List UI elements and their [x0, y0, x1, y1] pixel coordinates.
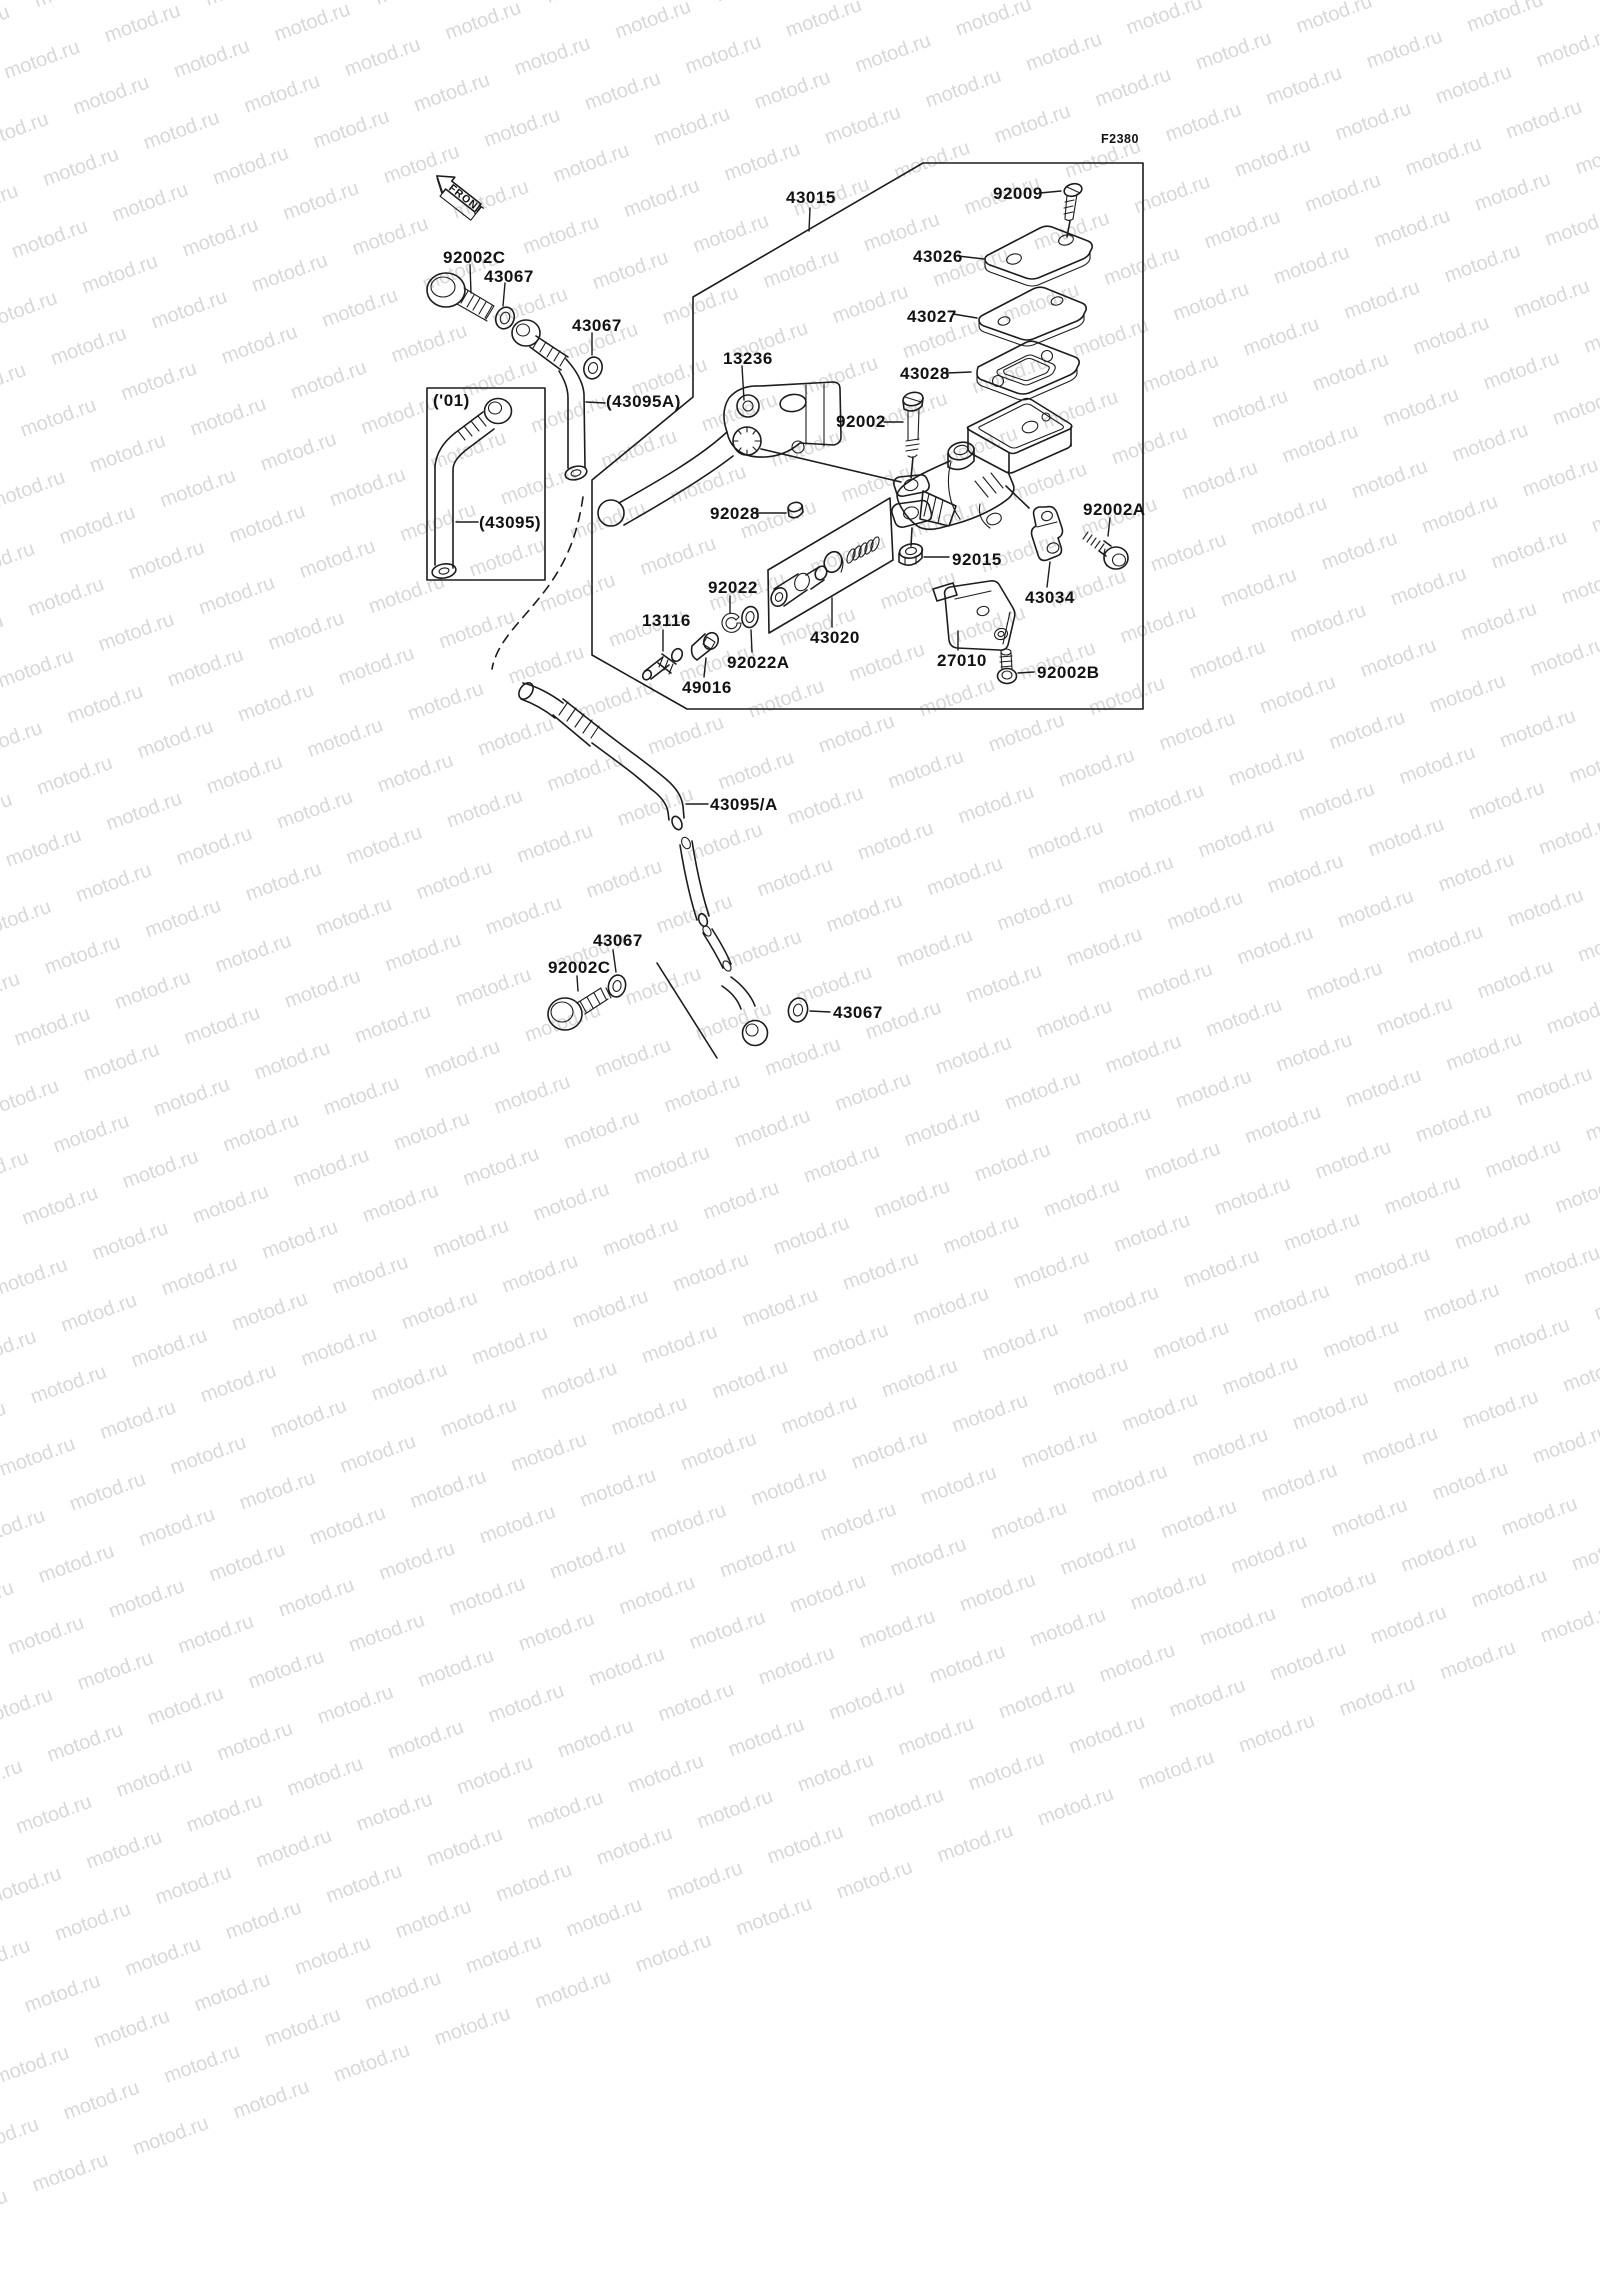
leader-line-43028	[947, 372, 971, 373]
clutch-lever-13236	[598, 382, 841, 526]
watermark-text: motod.ru	[957, 1560, 1064, 1615]
watermark-text: motod.ru	[1136, 1738, 1243, 1793]
lever-pin-92028	[787, 501, 803, 518]
watermark-text: motod.ru	[369, 1350, 476, 1405]
leader-line-92022A	[751, 630, 752, 652]
socket-bolt-92002a	[1083, 532, 1128, 569]
watermark-text: motod.ru	[114, 1746, 221, 1801]
watermark-text: motod.ru	[330, 1242, 437, 1297]
watermark-text: motod.ru	[633, 1921, 740, 1976]
watermark-text: motod.ru	[231, 2067, 338, 2122]
watermark-text: motod.ru	[1320, 1306, 1427, 1361]
clutch-switch-27010	[933, 581, 1015, 650]
leader-line-43095A	[586, 402, 605, 403]
watermark-text: motod.ru	[432, 1994, 539, 2049]
watermark-text: motod.ru	[463, 1922, 570, 1977]
watermark-text: motod.ru	[184, 1781, 291, 1836]
watermark-text: motod.ru	[424, 1815, 531, 1870]
watermark-text: motod.ru	[159, 1244, 266, 1299]
watermark-text: motod.ru	[0, 1854, 90, 1909]
watermark-text: motod.ru	[857, 1597, 964, 1652]
watermark-row: motod.rumotod.rumotod.rumotod.rumotod.ru…	[0, 1082, 1600, 2125]
watermark-text: motod.ru	[192, 1960, 299, 2015]
watermark-text: motod.ru	[670, 1240, 777, 1295]
watermark-row: motod.rumotod.rumotod.rumotod.rumotod.ru…	[0, 1046, 1600, 2089]
watermark-text: motod.ru	[586, 1634, 693, 1689]
hose-43095a-lower	[516, 680, 768, 1045]
watermark-text: motod.ru	[1011, 1237, 1118, 1292]
watermark-text: motod.ru	[175, 1602, 282, 1657]
watermark-text: motod.ru	[0, 1496, 74, 1551]
watermark-text: motod.ru	[1158, 1487, 1265, 1542]
main-assembly-box-43015	[592, 163, 1143, 709]
watermark-text: motod.ru	[106, 1566, 213, 1621]
watermark-text: motod.ru	[740, 1275, 847, 1330]
watermark-text: motod.ru	[0, 2105, 68, 2160]
watermark-text: motod.ru	[717, 1526, 824, 1581]
watermark-text: motod.ru	[609, 1383, 716, 1438]
watermark-text: motod.ru	[508, 1420, 615, 1475]
push-rod-13116	[641, 647, 684, 681]
watermark-text: motod.ru	[840, 1239, 947, 1294]
watermark-text: motod.ru	[393, 1887, 500, 1942]
banjo-washer-43067-4	[786, 996, 810, 1023]
watermark-text: motod.ru	[0, 1461, 4, 1516]
watermark-text: motod.ru	[0, 1424, 104, 1479]
leader-lines	[456, 191, 1110, 1012]
screw-92009	[1063, 182, 1083, 221]
hose-hidden-path-dashed	[492, 497, 583, 669]
watermark-text: motod.ru	[639, 1312, 746, 1367]
watermark-text: motod.ru	[298, 1314, 405, 1369]
watermark-text: motod.ru	[756, 1633, 863, 1688]
watermark-text: motod.ru	[1097, 1630, 1204, 1685]
watermark-text: motod.ru	[532, 1957, 639, 2012]
watermark-text: motod.ru	[555, 1706, 662, 1761]
watermark-text: motod.ru	[625, 1741, 732, 1796]
watermark-text: motod.ru	[648, 1491, 755, 1546]
watermark-text: motod.ru	[0, 1747, 51, 1802]
watermark-text: motod.ru	[1499, 1484, 1600, 1539]
hose-43095a-upper	[512, 320, 588, 482]
watermark-text: motod.ru	[376, 1529, 483, 1584]
watermark-text: motod.ru	[0, 1998, 29, 2053]
watermark-text: motod.ru	[594, 1813, 701, 1868]
watermark-text: motod.ru	[1220, 1343, 1327, 1398]
watermark-text: motod.ru	[709, 1347, 816, 1402]
watermark-text: motod.ru	[1298, 1557, 1405, 1612]
watermark-text: motod.ru	[153, 1853, 260, 1908]
watermark-text: motod.ru	[0, 1317, 65, 1372]
watermark-text: motod.ru	[6, 1603, 113, 1658]
watermark-text: motod.ru	[1368, 1592, 1475, 1647]
watermark-text: motod.ru	[1398, 1521, 1505, 1576]
watermark-text: motod.ru	[198, 1351, 305, 1406]
watermark-text: motod.ru	[0, 1389, 35, 1444]
watermark-text: motod.ru	[1035, 1774, 1142, 1829]
watermark-text: motod.ru	[259, 1207, 366, 1262]
watermark-text: motod.ru	[214, 1709, 321, 1764]
watermark-text: motod.ru	[1119, 1380, 1226, 1435]
watermark-text: motod.ru	[1569, 1519, 1600, 1574]
seal-washer-92022a	[740, 605, 759, 628]
watermark-text: motod.ru	[363, 1958, 470, 2013]
watermark-text: motod.ru	[13, 1782, 120, 1837]
watermark-text: motod.ru	[1190, 1415, 1297, 1470]
watermark-text: motod.ru	[30, 2140, 137, 2195]
watermark-text: motod.ru	[1421, 1270, 1528, 1325]
watermark-text: motod.ru	[315, 1672, 422, 1727]
watermark-text: motod.ru	[935, 1811, 1042, 1866]
leader-line-92009	[1040, 191, 1061, 193]
watermark-text: motod.ru	[1089, 1451, 1196, 1506]
watermark-text: motod.ru	[430, 1206, 537, 1261]
watermark-text: motod.ru	[547, 1527, 654, 1582]
watermark-text: motod.ru	[678, 1419, 785, 1474]
watermark-text: motod.ru	[1337, 1664, 1444, 1719]
watermark-text: motod.ru	[276, 1565, 383, 1620]
watermark-text: motod.ru	[810, 1310, 917, 1365]
watermark-text: motod.ru	[888, 1524, 995, 1579]
reservoir-cap-43026	[985, 226, 1092, 286]
watermark-text: motod.ru	[447, 1564, 554, 1619]
watermark-text: motod.ru	[0, 1926, 59, 1981]
watermark-text: motod.ru	[516, 1599, 623, 1654]
watermark-text: motod.ru	[834, 1847, 941, 1902]
watermark-text: motod.ru	[795, 1740, 902, 1795]
watermark-text: motod.ru	[918, 1453, 1025, 1508]
leader-line-13236	[742, 366, 744, 400]
watermark-text: motod.ru	[996, 1667, 1103, 1722]
watermark-text: motod.ru	[337, 1422, 444, 1477]
watermark-text: motod.ru	[726, 1705, 833, 1760]
leader-line-43034	[1047, 562, 1050, 587]
watermark-text: motod.ru	[600, 1205, 707, 1260]
watermark-text: motod.ru	[1281, 1199, 1388, 1254]
watermark-text: motod.ru	[0, 2177, 37, 2232]
piston-kit-box-43020	[768, 498, 893, 633]
watermark-text: motod.ru	[486, 1671, 593, 1726]
watermark-text: motod.ru	[438, 1385, 545, 1440]
watermark-text: motod.ru	[656, 1670, 763, 1725]
watermark-text: motod.ru	[1460, 1377, 1567, 1432]
watermark-text: motod.ru	[0, 1245, 96, 1300]
watermark-text: motod.ru	[122, 1924, 229, 1979]
watermark-text: motod.ru	[664, 1849, 771, 1904]
watermark-text: motod.ru	[130, 2104, 237, 2159]
watermark-text: motod.ru	[307, 1493, 414, 1548]
watermark-text: motod.ru	[45, 1710, 152, 1765]
watermark-text: motod.ru	[765, 1812, 872, 1867]
watermark-text: motod.ru	[1197, 1594, 1304, 1649]
watermark-text: motod.ru	[415, 1636, 522, 1691]
watermark-text: motod.ru	[52, 1889, 159, 1944]
leader-line-49016	[704, 658, 706, 677]
watermark-text: motod.ru	[285, 1744, 392, 1799]
watermark-text: motod.ru	[1290, 1378, 1397, 1433]
leader-line-92002B	[1018, 672, 1034, 673]
watermark-text: motod.ru	[1530, 1412, 1600, 1467]
watermark-text: motod.ru	[1151, 1308, 1258, 1363]
reservoir-plate-43027	[979, 287, 1086, 346]
watermark-text: motod.ru	[1236, 1701, 1343, 1756]
piston-43020-contents	[768, 536, 880, 609]
snap-ring-92022	[722, 613, 741, 632]
watermark-text: motod.ru	[493, 1850, 600, 1905]
leader-line-92002A	[1108, 518, 1110, 536]
watermark-text: motod.ru	[90, 1208, 197, 1263]
watermark-text: motod.ru	[1251, 1271, 1358, 1326]
watermark-text: motod.ru	[1027, 1595, 1134, 1650]
watermark-text: motod.ru	[246, 1637, 353, 1692]
front-arrow: FRONT	[428, 168, 489, 223]
watermark-text: motod.ru	[1359, 1414, 1466, 1469]
watermark-text: motod.ru	[207, 1530, 314, 1585]
watermark-text: motod.ru	[1050, 1344, 1157, 1399]
watermark-text: motod.ru	[695, 1777, 802, 1832]
leader-line-43015	[809, 208, 810, 231]
watermark-text: motod.ru	[1167, 1666, 1274, 1721]
watermark-text: motod.ru	[385, 1707, 492, 1762]
watermark-row: motod.rumotod.rumotod.rumotod.rumotod.ru…	[0, 1189, 1600, 2232]
inset-hose-43095	[431, 399, 512, 580]
watermark-text: motod.ru	[477, 1492, 584, 1547]
watermark-text: motod.ru	[0, 2033, 98, 2088]
banjo-washer-43067-2	[581, 355, 604, 381]
watermark-text: motod.ru	[787, 1561, 894, 1616]
watermark-text: motod.ru	[865, 1775, 972, 1830]
clamp-holder-43034	[1032, 507, 1063, 561]
watermark-text: motod.ru	[1181, 1236, 1288, 1291]
watermark-text: motod.ru	[1229, 1522, 1336, 1577]
watermark-text: motod.ru	[687, 1598, 794, 1653]
piston-stop-49016	[692, 630, 721, 660]
watermark-text: motod.ru	[0, 1568, 43, 1623]
watermark-text: motod.ru	[1352, 1234, 1459, 1289]
watermark-text: motod.ru	[1066, 1702, 1173, 1757]
watermark-text: motod.ru	[771, 1203, 878, 1258]
watermark-text: motod.ru	[1128, 1558, 1235, 1613]
watermark-text: motod.ru	[748, 1454, 855, 1509]
watermark-text: motod.ru	[1268, 1629, 1375, 1684]
watermark-text: motod.ru	[1080, 1272, 1187, 1327]
watermark-text: motod.ru	[399, 1278, 506, 1333]
watermark-text: motod.ru	[525, 1778, 632, 1833]
watermark-text: motod.ru	[129, 1316, 236, 1371]
watermark-text: motod.ru	[75, 1638, 182, 1693]
watermark-text: motod.ru	[145, 1674, 252, 1729]
leader-line-92002C	[470, 265, 471, 293]
watermark-text: motod.ru	[22, 1961, 129, 2016]
watermark-text: motod.ru	[0, 1675, 82, 1730]
watermark-text: motod.ru	[223, 1888, 330, 1943]
watermark-text: motod.ru	[539, 1348, 646, 1403]
watermark-text: motod.ru	[578, 1455, 685, 1510]
watermark-text: motod.ru	[1437, 1628, 1544, 1683]
watermark-text: motod.ru	[61, 2068, 168, 2123]
watermark-text: motod.ru	[1058, 1523, 1165, 1578]
parts-fiche-page: { "diagram": { "figure_code": "F2380", "…	[0, 0, 1600, 1200]
switch-screw-92002b	[998, 649, 1017, 684]
watermark-text: motod.ru	[564, 1885, 671, 1940]
watermark-text: motod.ru	[1592, 1268, 1600, 1323]
pivot-bolt-92002	[902, 391, 924, 458]
watermark-text: motod.ru	[292, 1923, 399, 1978]
watermark-text: motod.ru	[469, 1313, 576, 1368]
watermark-text: motod.ru	[734, 1884, 841, 1939]
diaphragm-43028	[977, 341, 1079, 400]
watermark-text: motod.ru	[818, 1489, 925, 1544]
watermark-text: motod.ru	[97, 1388, 204, 1443]
watermark-text: motod.ru	[28, 1352, 135, 1407]
watermark-text: motod.ru	[346, 1600, 453, 1655]
watermark-text: motod.ru	[253, 1816, 360, 1871]
watermark-text: motod.ru	[91, 1996, 198, 2051]
watermark-text: motod.ru	[408, 1457, 515, 1512]
watermark-text: motod.ru	[161, 2032, 268, 2087]
watermark-text: motod.ru	[36, 1531, 143, 1586]
watermark-text: motod.ru	[1430, 1449, 1537, 1504]
watermark-text: motod.ru	[1452, 1198, 1559, 1253]
banjo-bolt-92002c-top	[427, 273, 494, 321]
watermark-text: motod.ru	[826, 1668, 933, 1723]
leader-line-43067	[613, 950, 616, 972]
watermark-text: motod.ru	[1560, 1340, 1600, 1395]
watermark-text: motod.ru	[949, 1381, 1056, 1436]
watermark-text: motod.ru	[262, 1995, 369, 2050]
leader-line-43067	[810, 1011, 830, 1012]
watermark-text: motod.ru	[1521, 1233, 1600, 1288]
watermark-text: motod.ru	[570, 1276, 677, 1331]
watermark-text: motod.ru	[896, 1704, 1003, 1759]
watermark-text: motod.ru	[927, 1632, 1034, 1687]
watermark-text: motod.ru	[136, 1495, 243, 1550]
watermark-text: motod.ru	[1491, 1305, 1598, 1360]
watermark-text: motod.ru	[1469, 1556, 1576, 1611]
watermark-text: motod.ru	[237, 1458, 344, 1513]
watermark-text: motod.ru	[268, 1386, 375, 1441]
parts-diagram-canvas: FRONT	[0, 0, 1600, 1200]
watermark-text: motod.ru	[617, 1563, 724, 1618]
leader-line-92002C	[577, 976, 578, 991]
watermark-text: motod.ru	[0, 1819, 20, 1874]
watermark-text: motod.ru	[0, 1210, 26, 1265]
front-arrow-label: FRONT	[446, 182, 486, 217]
watermark-text: motod.ru	[910, 1274, 1017, 1329]
watermark-text: motod.ru	[0, 1640, 12, 1695]
watermark-text: motod.ru	[966, 1739, 1073, 1794]
leader-line-43026	[958, 256, 984, 259]
watermark-text: motod.ru	[1538, 1591, 1600, 1646]
watermark-text: motod.ru	[941, 1202, 1048, 1257]
watermark-text: motod.ru	[500, 1241, 607, 1296]
watermark-text: motod.ru	[331, 2030, 438, 2085]
watermark-text: motod.ru	[58, 1280, 165, 1335]
watermark-text: motod.ru	[1329, 1485, 1436, 1540]
watermark-text: motod.ru	[229, 1279, 336, 1334]
watermark-text: motod.ru	[84, 1817, 191, 1872]
watermark-text: motod.ru	[1391, 1342, 1498, 1397]
watermark-text: motod.ru	[67, 1459, 174, 1514]
watermark-text: motod.ru	[1112, 1200, 1219, 1255]
watermark-text: motod.ru	[354, 1780, 461, 1835]
watermark-text: motod.ru	[849, 1417, 956, 1472]
watermark-text: motod.ru	[1019, 1416, 1126, 1471]
leader-line-43027	[953, 314, 977, 318]
watermark-text: motod.ru	[779, 1382, 886, 1437]
banjo-bolt-92002c-bottom	[548, 988, 611, 1030]
watermark-row: motod.rumotod.rumotod.rumotod.rumotod.ru…	[0, 1153, 1600, 2196]
watermark-text: motod.ru	[980, 1309, 1087, 1364]
leader-line-43067	[503, 283, 505, 306]
watermark-text: motod.ru	[324, 1851, 431, 1906]
watermark-text: motod.ru	[1259, 1450, 1366, 1505]
watermark-text: motod.ru	[988, 1488, 1095, 1543]
watermark-text: motod.ru	[168, 1423, 275, 1478]
watermark-text: motod.ru	[454, 1743, 561, 1798]
watermark-text: motod.ru	[879, 1346, 986, 1401]
